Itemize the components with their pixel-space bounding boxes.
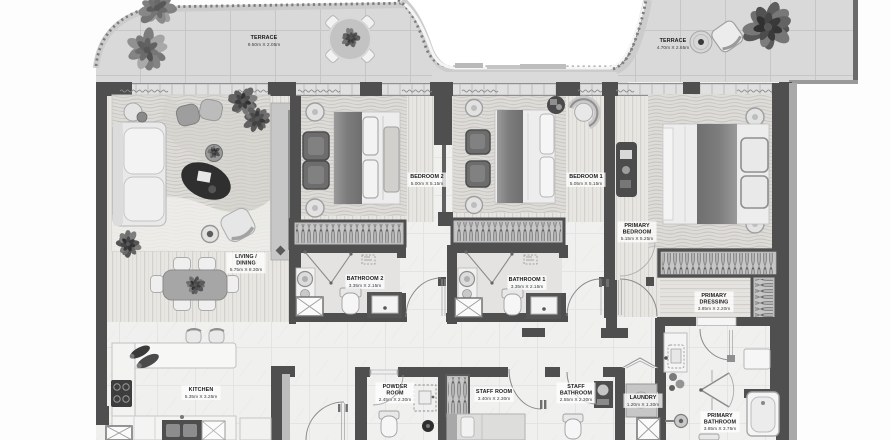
svg-text:5.75m X 8.30m: 5.75m X 8.30m [230, 267, 263, 273]
svg-text:TERRACE: TERRACE [251, 35, 278, 41]
svg-text:2.55m X 2.30m: 2.55m X 2.30m [560, 397, 593, 403]
svg-text:1.20m X 1.30m: 1.20m X 1.30m [627, 402, 660, 408]
svg-text:BATHROOM: BATHROOM [704, 419, 737, 425]
svg-text:2.45m X 2.30m: 2.45m X 2.30m [379, 397, 412, 403]
svg-text:9.50m X 2.05m: 9.50m X 2.05m [248, 42, 281, 48]
svg-text:PRIMARY: PRIMARY [624, 223, 650, 229]
svg-text:BEDROOM 2: BEDROOM 2 [410, 174, 444, 180]
svg-text:3.85m X 3.75m: 3.85m X 3.75m [704, 426, 737, 432]
svg-text:STAFF: STAFF [567, 384, 585, 390]
svg-text:DRESSING: DRESSING [700, 299, 729, 305]
svg-text:PRIMARY: PRIMARY [701, 293, 727, 299]
svg-text:BATHROOM 1: BATHROOM 1 [509, 277, 546, 283]
svg-text:5.15m X 5.25m: 5.15m X 5.25m [621, 236, 654, 242]
svg-text:STAFF ROOM: STAFF ROOM [476, 389, 513, 395]
svg-text:DINING: DINING [236, 260, 255, 266]
svg-text:KITCHEN: KITCHEN [189, 387, 214, 393]
svg-text:5.35m X 3.25m: 5.35m X 3.25m [185, 394, 218, 400]
svg-text:5.00m X 5.15m: 5.00m X 5.15m [411, 181, 444, 187]
svg-text:BATHROOM: BATHROOM [560, 390, 593, 396]
svg-text:BEDROOM 1: BEDROOM 1 [569, 174, 603, 180]
svg-text:3.35m X 2.15m: 3.35m X 2.15m [349, 283, 382, 289]
svg-text:PRIMARY: PRIMARY [707, 413, 733, 419]
svg-text:BEDROOM: BEDROOM [623, 229, 652, 235]
svg-text:3.40m X 2.30m: 3.40m X 2.30m [478, 396, 511, 402]
svg-text:LIVING /: LIVING / [235, 254, 257, 260]
svg-text:POWDER: POWDER [383, 384, 408, 390]
svg-text:4.70m X 2.65m: 4.70m X 2.65m [657, 45, 690, 51]
svg-text:TERRACE: TERRACE [660, 38, 687, 44]
svg-text:BATHROOM 2: BATHROOM 2 [347, 276, 384, 282]
svg-text:3.35m X 2.15m: 3.35m X 2.15m [511, 284, 544, 290]
svg-text:LAUNDRY: LAUNDRY [630, 395, 657, 401]
svg-text:5.05m X 5.15m: 5.05m X 5.15m [570, 181, 603, 187]
svg-text:3.85m X 2.20m: 3.85m X 2.20m [698, 306, 731, 312]
